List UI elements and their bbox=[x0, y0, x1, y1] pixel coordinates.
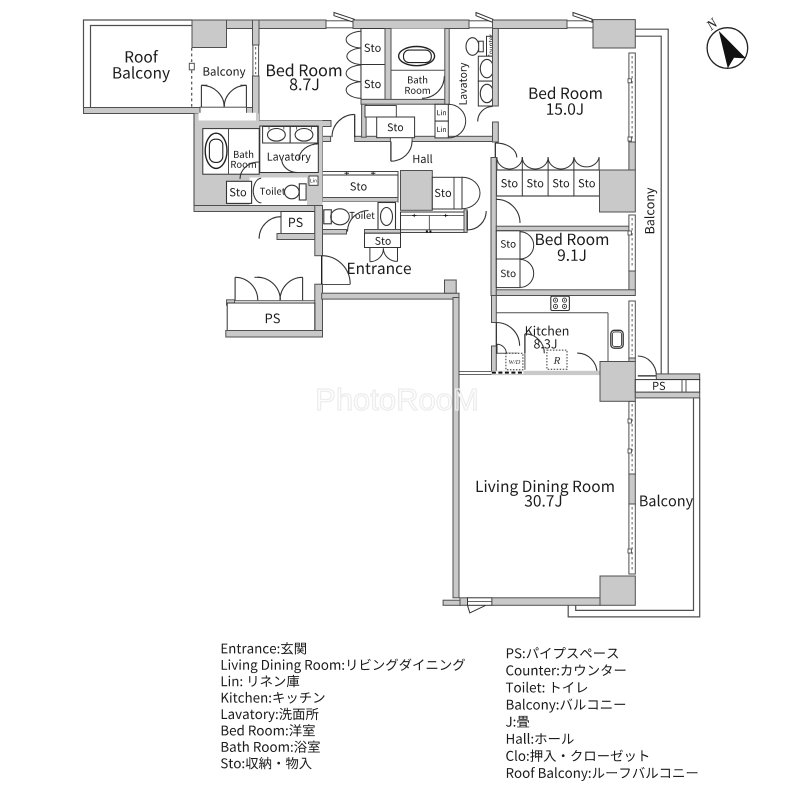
svg-text:PhotoRooM: PhotoRooM bbox=[315, 382, 479, 417]
svg-text:W/D: W/D bbox=[508, 359, 520, 366]
svg-text:R: R bbox=[553, 355, 561, 367]
